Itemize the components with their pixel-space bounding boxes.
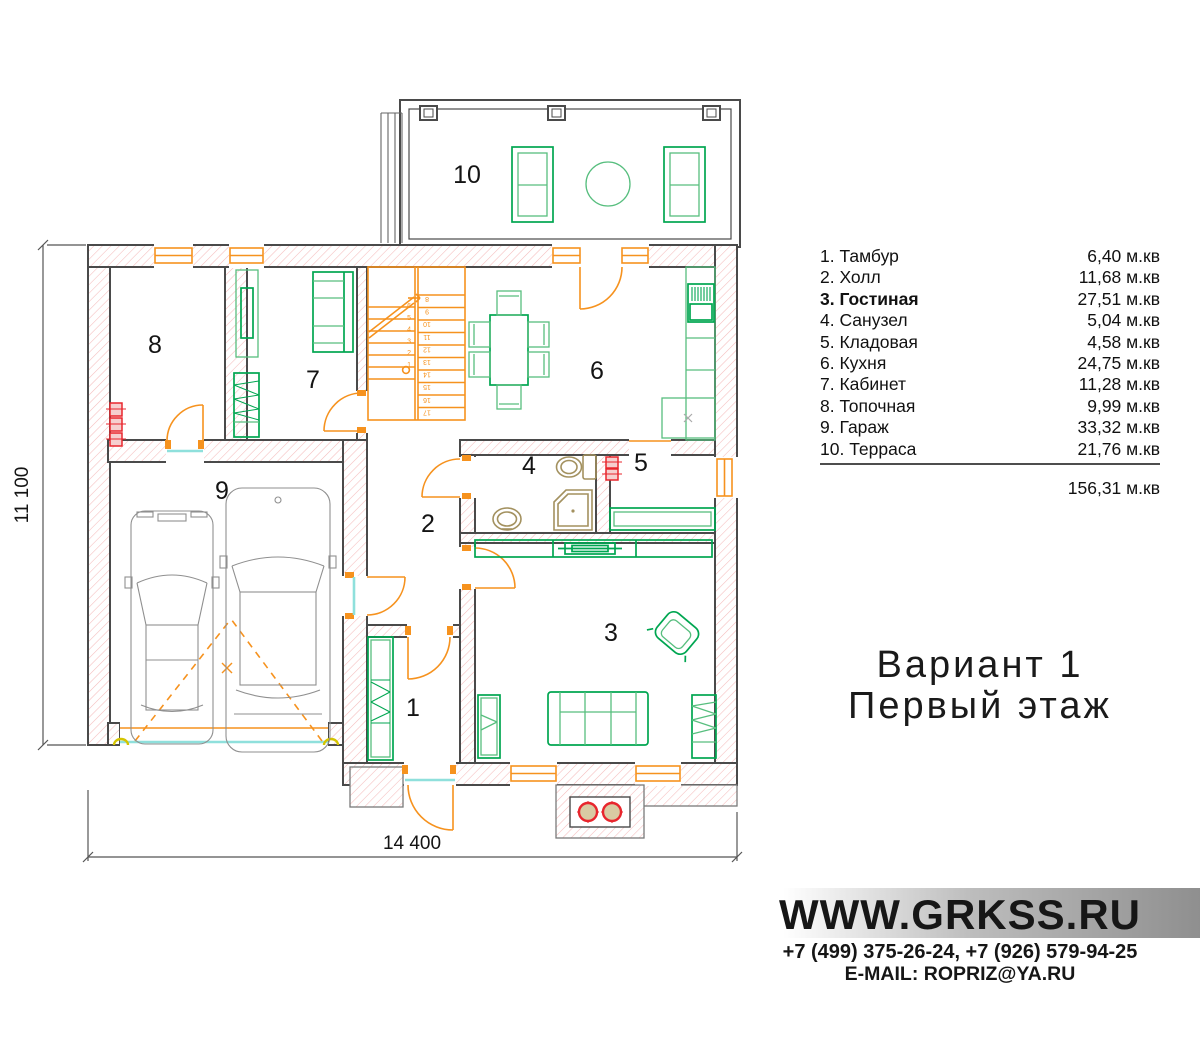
kitchen-counter xyxy=(662,267,715,440)
legend-room-area: 27,51 м.кв xyxy=(1077,289,1160,310)
terrace-steps xyxy=(381,113,402,243)
stair-number: 11 xyxy=(423,333,430,340)
dimension-height: 11 100 xyxy=(12,240,86,750)
title-block: Вариант 1 Первый этаж xyxy=(770,645,1190,727)
room-label-kitchen: 6 xyxy=(590,357,604,385)
legend-room-area: 21,76 м.кв xyxy=(1077,439,1160,460)
room5-furniture xyxy=(610,508,715,530)
legend-room-area: 11,28 м.кв xyxy=(1079,374,1160,395)
legend-row: 1. Тамбур6,40 м.кв xyxy=(820,246,1160,267)
variant-title: Вариант 1 xyxy=(770,645,1190,686)
stair-number: 12 xyxy=(423,345,431,352)
legend-total-area: 156,31 м.кв xyxy=(820,478,1160,499)
email-address: E-MAIL: ROPRIZ@YA.RU xyxy=(728,963,1192,986)
legend-row: 8. Топочная9,99 м.кв xyxy=(820,396,1160,417)
legend-room-area: 24,75 м.кв xyxy=(1077,353,1160,374)
stair-number: 5 xyxy=(407,315,411,322)
legend-room-name: 7. Кабинет xyxy=(820,374,906,395)
room-label-boiler-room: 8 xyxy=(148,331,162,359)
floor-title: Первый этаж xyxy=(770,686,1190,727)
stair-number: 1 xyxy=(407,362,411,369)
room7-furniture xyxy=(234,270,353,437)
terrace-posts xyxy=(420,106,720,120)
door-terrace xyxy=(580,267,622,309)
room-label-living-room: 3 xyxy=(604,619,618,647)
legend-row: 5. Кладовая4,58 м.кв xyxy=(820,332,1160,353)
terrace-bench-left xyxy=(512,147,553,222)
stairs: 6 5 4 3 2 1 8 9 10 11 12 13 14 15 16 17 xyxy=(368,267,465,420)
room-label-hall: 2 xyxy=(421,510,435,538)
stair-number: 14 xyxy=(423,371,431,378)
legend-room-area: 4,58 м.кв xyxy=(1087,332,1160,353)
stair-number: 6 xyxy=(407,303,411,310)
dimension-width-label: 14 400 xyxy=(383,833,441,854)
legend-row: 2. Холл11,68 м.кв xyxy=(820,267,1160,288)
stair-number: 16 xyxy=(423,396,431,403)
room7-sofa xyxy=(313,272,353,352)
legend-room-area: 33,32 м.кв xyxy=(1077,417,1160,438)
legend-room-name: 10. Терраса xyxy=(820,439,916,460)
stair-number: 2 xyxy=(407,350,411,357)
legend-row: 9. Гараж33,32 м.кв xyxy=(820,417,1160,438)
room-label-garage: 9 xyxy=(215,477,229,505)
toilet xyxy=(557,455,597,479)
legend-room-name: 6. Кухня xyxy=(820,353,886,374)
room-legend: 1. Тамбур6,40 м.кв 2. Холл11,68 м.кв 3. … xyxy=(820,246,1160,499)
room-label-storage: 5 xyxy=(634,449,648,477)
room3-sofa xyxy=(548,692,648,745)
legend-row: 4. Санузел5,04 м.кв xyxy=(820,310,1160,331)
legend-divider xyxy=(820,463,1160,465)
terrace-round-table xyxy=(586,162,630,206)
legend-row: 6. Кухня24,75 м.кв xyxy=(820,353,1160,374)
room3-furniture xyxy=(475,540,716,758)
room3-cabinet-left xyxy=(478,695,500,758)
room-label-vestibule: 1 xyxy=(406,694,420,722)
terrace-bench-right xyxy=(664,147,705,222)
legend-room-name: 9. Гараж xyxy=(820,417,889,438)
kitchen-furniture xyxy=(469,267,715,440)
legend-room-area: 11,68 м.кв xyxy=(1079,267,1160,288)
legend-room-area: 5,04 м.кв xyxy=(1087,310,1160,331)
legend-room-area: 6,40 м.кв xyxy=(1087,246,1160,267)
stair-number: 9 xyxy=(425,308,429,315)
legend-room-name: 5. Кладовая xyxy=(820,332,918,353)
room3-cabinet-right xyxy=(692,695,716,758)
legend-row: 10. Терраса21,76 м.кв xyxy=(820,439,1160,460)
floor-plan-page: 6 5 4 3 2 1 8 9 10 11 12 13 14 15 16 17 xyxy=(0,0,1200,1050)
sink xyxy=(493,508,521,530)
car-right xyxy=(220,488,336,752)
shower xyxy=(554,490,592,530)
legend-room-name: 2. Холл xyxy=(820,267,881,288)
phone-numbers: +7 (499) 375-26-24, +7 (926) 579-94-25 xyxy=(728,941,1192,964)
stair-number: 4 xyxy=(407,327,411,334)
legend-row: 7. Кабинет11,28 м.кв xyxy=(820,374,1160,395)
stair-number: 13 xyxy=(423,358,431,365)
legend-room-area: 9,99 м.кв xyxy=(1087,396,1160,417)
stair-number: 8 xyxy=(425,295,429,302)
porch xyxy=(556,785,644,838)
garage-cars xyxy=(125,488,336,752)
terrace xyxy=(381,100,740,247)
room-label-study: 7 xyxy=(306,366,320,394)
stair-number: 17 xyxy=(423,408,431,415)
legend-room-name: 1. Тамбур xyxy=(820,246,899,267)
dimension-height-label: 11 100 xyxy=(12,467,33,524)
bathroom-fixtures xyxy=(493,455,596,530)
legend-room-name: 8. Топочная xyxy=(820,396,915,417)
car-left xyxy=(125,511,219,744)
stair-number: 15 xyxy=(423,383,431,390)
room-label-bathroom: 4 xyxy=(522,452,536,480)
room-label-terrace: 10 xyxy=(453,161,481,189)
dining-table xyxy=(469,291,549,409)
room1-cabinet xyxy=(368,637,393,760)
legend-room-name: 3. Гостиная xyxy=(820,289,919,310)
legend-room-name: 4. Санузел xyxy=(820,310,908,331)
stair-number: 3 xyxy=(407,338,411,345)
stair-number: 10 xyxy=(423,320,431,327)
room3-armchair xyxy=(647,605,707,662)
website-url: WWW.GRKSS.RU xyxy=(740,891,1180,939)
legend-row: 3. Гостиная27,51 м.кв xyxy=(820,289,1160,310)
